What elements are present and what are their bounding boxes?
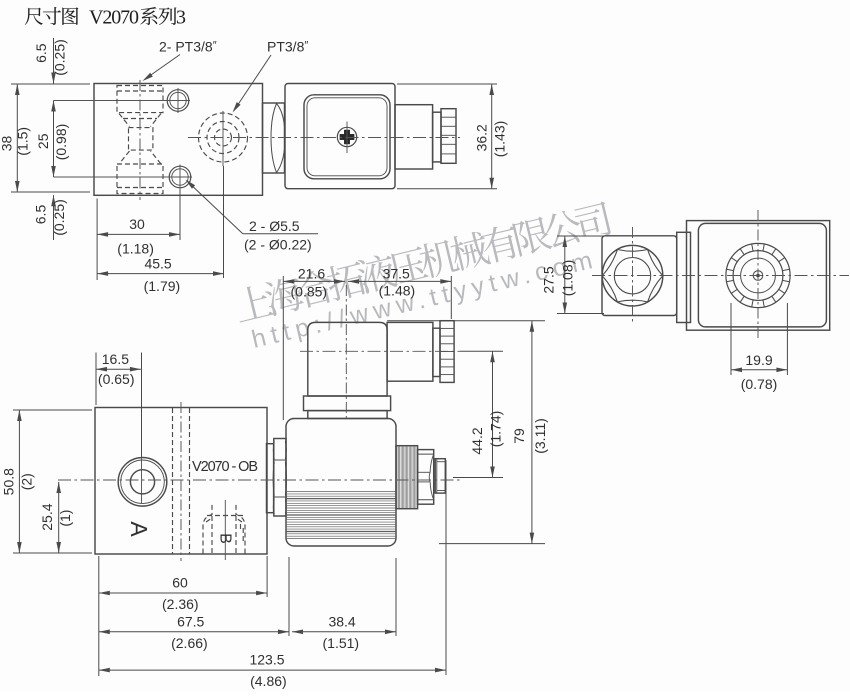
svg-text:A: A — [126, 521, 152, 537]
svg-text:2 - Ø5.5: 2 - Ø5.5 — [249, 218, 300, 234]
svg-text:25.4: 25.4 — [39, 503, 55, 530]
svg-text:79: 79 — [511, 428, 527, 444]
svg-text:(0.85): (0.85) — [291, 284, 328, 300]
svg-text:3: 3 — [176, 6, 186, 28]
svg-text:(0.65): (0.65) — [98, 371, 135, 387]
svg-text:(0.98): (0.98) — [53, 124, 69, 161]
svg-text:(1): (1) — [57, 510, 73, 527]
svg-text:45.5: 45.5 — [144, 256, 171, 272]
svg-text:(2 - Ø0.22): (2 - Ø0.22) — [244, 237, 312, 253]
svg-text:44.2: 44.2 — [469, 427, 485, 454]
svg-text:(1.18): (1.18) — [117, 240, 154, 256]
svg-text:19.9: 19.9 — [745, 352, 772, 368]
svg-text:38.4: 38.4 — [328, 614, 355, 630]
svg-text:6.5: 6.5 — [33, 43, 49, 63]
svg-text:(1.48): (1.48) — [379, 283, 416, 299]
svg-text:38: 38 — [0, 136, 15, 152]
svg-text:(3.11): (3.11) — [532, 418, 548, 454]
svg-text:(1.5): (1.5) — [15, 127, 31, 156]
svg-text:27.5: 27.5 — [541, 266, 557, 293]
svg-text:(0.25): (0.25) — [51, 199, 67, 236]
svg-text:123.5: 123.5 — [249, 652, 284, 668]
svg-text:6.5: 6.5 — [33, 205, 49, 225]
svg-text:2- PT3/8″: 2- PT3/8″ — [159, 39, 217, 55]
svg-text:(2): (2) — [19, 473, 35, 490]
svg-text:36.2: 36.2 — [474, 124, 490, 151]
svg-text:(0.25): (0.25) — [52, 39, 68, 76]
svg-text:V2070: V2070 — [89, 6, 139, 28]
svg-text:V2070 - OB: V2070 - OB — [192, 459, 258, 475]
svg-text:21.6: 21.6 — [298, 266, 325, 282]
svg-text:16.5: 16.5 — [102, 351, 129, 367]
svg-text:67.5: 67.5 — [177, 614, 204, 630]
svg-text:(1.43): (1.43) — [492, 121, 508, 158]
svg-text:PT3/8″: PT3/8″ — [267, 39, 308, 55]
svg-text:(2.36): (2.36) — [162, 596, 199, 612]
svg-text:25: 25 — [35, 133, 51, 149]
svg-text:30: 30 — [129, 216, 145, 232]
svg-text:60: 60 — [172, 575, 188, 591]
svg-text:(1.51): (1.51) — [323, 635, 360, 651]
svg-text:B: B — [217, 533, 234, 544]
svg-text:50.8: 50.8 — [0, 468, 16, 495]
svg-text:(1.79): (1.79) — [144, 278, 181, 294]
svg-text:(2.66): (2.66) — [171, 635, 208, 651]
svg-text:(1.08): (1.08) — [560, 260, 576, 297]
svg-text:(0.78): (0.78) — [741, 376, 778, 392]
svg-text:(4.86): (4.86) — [250, 673, 287, 689]
svg-text:37.5: 37.5 — [383, 266, 410, 282]
svg-text:(1.74): (1.74) — [488, 411, 504, 448]
